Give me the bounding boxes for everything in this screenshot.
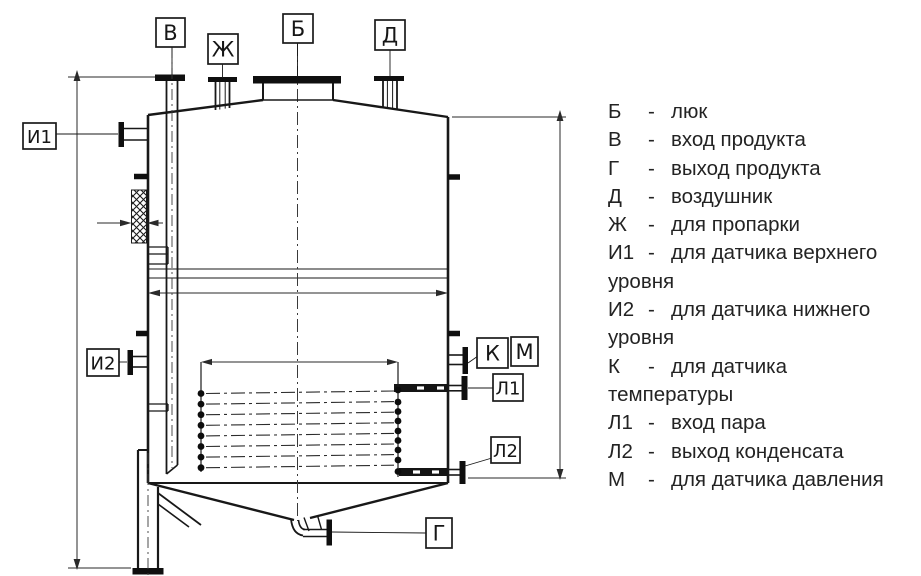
legend-item-Ж: Ж-для пропарки [608, 211, 910, 239]
legend-item-В: В-вход продукта [608, 126, 910, 154]
legend-description: для датчика верхнего [671, 241, 877, 264]
legend-separator: - [648, 296, 671, 324]
pipe-highlight [413, 470, 420, 473]
dip-pipe-bevel-end [167, 465, 178, 474]
i2-lower-level-nozzle [119, 350, 148, 375]
vessel-technical-drawing: В Ж Б Д И1 И2 [0, 0, 600, 576]
coil-turns [206, 391, 394, 468]
cone-right [310, 483, 448, 518]
callout-v-label: В [163, 21, 177, 45]
callout-l2-label: Л2 [493, 441, 518, 462]
heating-coil [198, 359, 402, 477]
legend-description: выход продукта [671, 157, 821, 180]
callout-i1-label: И1 [27, 127, 52, 148]
legend-description: выход конденсата [671, 440, 844, 463]
leg-brace-2 [158, 504, 189, 527]
legend-item-И2: И2-для датчика нижнего [608, 296, 910, 324]
legend-description-continuation: уровня [608, 268, 910, 296]
callout-zh-label: Ж [212, 38, 235, 62]
legend-letter: Д [608, 183, 648, 211]
flange [128, 350, 134, 375]
callout-zh: Ж [208, 34, 238, 64]
legend-letter: К [608, 353, 648, 381]
legend-description: для пропарки [671, 213, 800, 236]
callout-d: Д [375, 20, 405, 50]
flange [327, 520, 333, 546]
callout-d-label: Д [382, 24, 398, 48]
leader-line [332, 532, 426, 533]
pipe-highlight [432, 470, 439, 473]
legend-letter: Б [608, 98, 648, 126]
flange [460, 461, 466, 484]
legend-letter: М [608, 466, 648, 494]
legend-description: вход пара [671, 411, 766, 434]
crosshatch-strip [132, 190, 147, 243]
callout-g: Г [426, 518, 452, 548]
legend-description: для датчика нижнего [671, 298, 870, 321]
vent-d-nozzle [374, 50, 404, 110]
coil-tube-ends-right [395, 387, 402, 475]
product-outlet-g-nozzle [291, 516, 426, 546]
callout-i2: И2 [87, 349, 119, 376]
arrowhead-left [201, 359, 212, 365]
legend-item-Д: Д-воздушник [608, 183, 910, 211]
callout-b-label: Б [291, 17, 305, 41]
legend-letter: Л1 [608, 409, 648, 437]
callout-i1: И1 [23, 123, 56, 149]
callout-g-label: Г [433, 522, 446, 546]
arrowhead-right [120, 220, 132, 226]
head-slope-left [148, 100, 263, 115]
callout-k-label: К [485, 342, 500, 366]
legend-separator: - [648, 239, 671, 267]
legend-separator: - [648, 353, 671, 381]
vessel-drawing-page: В Ж Б Д И1 И2 [0, 0, 921, 576]
legend-item-Л1: Л1-вход пара [608, 409, 910, 437]
flange [155, 75, 185, 82]
legend-letter: Г [608, 155, 648, 183]
dimension-shell-height [452, 110, 566, 480]
legend-separator: - [648, 183, 671, 211]
legend-letter: В [608, 126, 648, 154]
dip-pipe-brackets [148, 247, 168, 411]
legend-letter: Ж [608, 211, 648, 239]
arrowhead-up [557, 110, 564, 121]
callout-m: М [511, 337, 538, 366]
legend-description-continuation: уровня [608, 324, 910, 352]
legend-separator: - [648, 155, 671, 183]
legend-description: для датчика [671, 355, 787, 378]
legend-separator: - [648, 466, 671, 494]
legend-separator: - [648, 409, 671, 437]
l2-condensate-outlet-nozzle [399, 458, 492, 484]
legend-separator: - [648, 211, 671, 239]
legend-item-М: М-для датчика давления [608, 466, 910, 494]
head-slope-right [333, 100, 448, 117]
callout-m-label: М [515, 340, 533, 364]
leader-line [465, 458, 492, 466]
flange [374, 76, 404, 81]
k-m-sensor-nozzle [448, 347, 478, 374]
callout-v: В [156, 18, 185, 47]
flange [463, 347, 469, 374]
legend-description: люк [671, 100, 707, 123]
l1-steam-inlet-nozzle [394, 376, 493, 400]
arrowhead-up [74, 70, 81, 81]
callout-b: Б [283, 14, 313, 43]
elbow-miter-2 [318, 516, 322, 530]
legend-letter: И2 [608, 296, 648, 324]
elbow-inner [299, 520, 306, 530]
legend-separator: - [648, 98, 671, 126]
arrowhead-right [387, 359, 398, 365]
legend-separator: - [648, 126, 671, 154]
legend-item-Л2: Л2-выход конденсата [608, 438, 910, 466]
legend-letter: Л2 [608, 438, 648, 466]
legend-item-И1: И1-для датчика верхнего [608, 239, 910, 267]
callout-l1-label: Л1 [496, 379, 521, 400]
callout-l2: Л2 [491, 437, 520, 463]
legend-description: вход продукта [671, 128, 806, 151]
pipe-highlight [437, 386, 444, 389]
flange [462, 376, 468, 400]
dimension-overall-height [68, 70, 157, 570]
pipe-highlight [417, 386, 424, 389]
legend-item-Б: Б-люк [608, 98, 910, 126]
legend-description: для датчика давления [671, 468, 884, 491]
legend-item-К: К-для датчика [608, 353, 910, 381]
legend-separator: - [648, 438, 671, 466]
legend: Б-люкВ-вход продуктаГ-выход продуктаД-во… [608, 98, 910, 494]
legend-item-Г: Г-выход продукта [608, 155, 910, 183]
callout-k: К [477, 338, 508, 368]
manhole-flange [253, 76, 341, 84]
callout-l1: Л1 [493, 374, 523, 401]
callout-i2-label: И2 [91, 354, 116, 375]
i1-upper-level-nozzle [56, 122, 148, 147]
legend-letter: И1 [608, 239, 648, 267]
hatched-wall-section [97, 190, 163, 243]
legend-description: воздушник [671, 185, 772, 208]
arrowhead-right [436, 290, 448, 296]
flange [119, 122, 125, 147]
arrowhead-left [148, 290, 160, 296]
legend-description-continuation: температуры [608, 381, 910, 409]
pipe-inside [399, 468, 448, 476]
